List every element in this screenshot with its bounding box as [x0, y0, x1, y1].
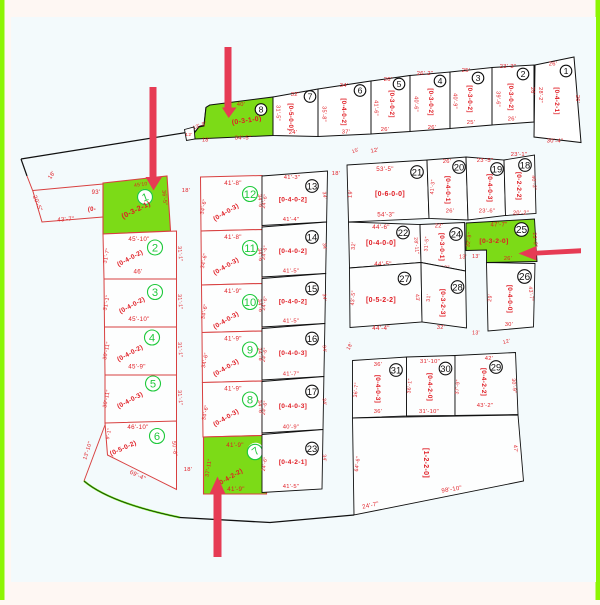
- svg-text:13': 13': [472, 331, 480, 337]
- svg-text:[0-4-0-1]: [0-4-0-1]: [444, 176, 451, 204]
- svg-text:26': 26': [384, 77, 392, 83]
- svg-text:43': 43': [414, 294, 421, 302]
- svg-text:26: 26: [519, 272, 531, 283]
- svg-text:[0-3-0-2]: [0-3-0-2]: [466, 85, 473, 113]
- svg-text:25': 25': [467, 120, 475, 126]
- svg-text:[0-4-0-2]: [0-4-0-2]: [340, 98, 347, 126]
- svg-text:2: 2: [521, 69, 526, 79]
- svg-text:21: 21: [412, 166, 422, 177]
- svg-text:41'-5": 41'-5": [283, 484, 300, 490]
- svg-text:54'-3": 54'-3": [377, 212, 395, 219]
- svg-text:[0-5-0-0]: [0-5-0-0]: [287, 103, 294, 131]
- svg-text:14: 14: [307, 231, 317, 242]
- svg-text:10: 10: [244, 297, 256, 309]
- svg-text:4: 4: [149, 333, 155, 345]
- svg-text:[0-3-0-2]: [0-3-0-2]: [427, 88, 434, 116]
- svg-text:41'-9": 41'-9": [227, 486, 245, 493]
- svg-text:18': 18': [332, 171, 340, 177]
- svg-text:[0-3-0-1]: [0-3-0-1]: [438, 233, 445, 261]
- svg-text:2: 2: [152, 243, 158, 255]
- svg-text:28: 28: [452, 281, 462, 292]
- svg-text:[0-3-2-0]: [0-3-2-0]: [479, 238, 508, 245]
- svg-text:31: 31: [391, 364, 401, 375]
- svg-text:18': 18': [202, 138, 210, 144]
- svg-text:18': 18': [182, 188, 190, 194]
- svg-text:13: 13: [307, 180, 317, 191]
- svg-text:19: 19: [492, 163, 502, 174]
- svg-text:[0-4-0-2]: [0-4-0-2]: [279, 248, 307, 255]
- svg-text:6: 6: [358, 86, 363, 96]
- svg-text:18': 18': [184, 467, 192, 473]
- svg-text:44'-6": 44'-6": [372, 224, 390, 231]
- svg-text:93': 93': [92, 190, 101, 196]
- svg-text:(0-: (0-: [88, 207, 96, 213]
- svg-text:43'-2": 43'-2": [477, 403, 494, 409]
- svg-text:41'-9": 41'-9": [224, 288, 242, 295]
- svg-text:47': 47': [512, 445, 519, 453]
- svg-text:41'-3": 41'-3": [284, 175, 301, 181]
- svg-text:39'-6": 39'-6": [495, 91, 501, 107]
- svg-text:30: 30: [440, 363, 450, 374]
- svg-text:26': 26': [574, 95, 580, 103]
- svg-text:8: 8: [259, 105, 264, 115]
- svg-text:47'-7": 47'-7": [490, 223, 507, 229]
- svg-text:23'-3": 23'-3": [500, 64, 517, 70]
- svg-text:40'-9": 40'-9": [452, 93, 458, 109]
- svg-text:[0-4-2-2]: [0-4-2-2]: [480, 368, 487, 396]
- svg-text:34': 34': [321, 398, 328, 406]
- svg-text:37': 37': [342, 130, 350, 136]
- svg-text:41'-8": 41'-8": [224, 180, 242, 187]
- svg-text:23'-1": 23'-1": [511, 152, 528, 158]
- svg-text:20'-2": 20'-2": [513, 211, 529, 217]
- svg-text:26': 26': [504, 256, 512, 262]
- svg-text:41'-7": 41'-7": [283, 372, 300, 378]
- svg-text:3: 3: [152, 287, 158, 299]
- svg-text:23'-6": 23'-6": [479, 209, 496, 215]
- svg-text:25': 25': [462, 68, 470, 74]
- svg-text:26': 26': [529, 87, 535, 95]
- svg-text:[0-4-0-3]: [0-4-0-3]: [279, 350, 307, 357]
- svg-text:[0-2-2-2]: [0-2-2-2]: [515, 172, 522, 200]
- svg-text:26'-2": 26'-2": [417, 71, 434, 77]
- svg-text:[0-4-2-1]: [0-4-2-1]: [553, 87, 560, 115]
- svg-text:34': 34': [321, 293, 328, 301]
- svg-text:29: 29: [491, 361, 501, 372]
- svg-text:31'-5": 31'-5": [275, 105, 281, 121]
- svg-text:[0-3-0-2]: [0-3-0-2]: [507, 83, 514, 111]
- svg-text:30': 30': [505, 322, 513, 328]
- svg-text:11: 11: [244, 243, 256, 255]
- svg-text:35'-8": 35'-8": [321, 106, 327, 122]
- svg-text:32': 32': [291, 92, 299, 98]
- svg-text:3: 3: [476, 73, 481, 83]
- svg-text:26': 26': [549, 62, 557, 68]
- svg-text:41'-9": 41'-9": [224, 386, 242, 393]
- svg-text:19': 19': [348, 190, 355, 198]
- svg-text:44'-4": 44'-4": [372, 325, 390, 332]
- svg-text:25: 25: [516, 225, 528, 236]
- svg-text:[0-4-0-0]: [0-4-0-0]: [366, 240, 396, 247]
- svg-text:46': 46': [134, 269, 143, 276]
- svg-text:4: 4: [438, 76, 443, 86]
- svg-text:26': 26': [446, 209, 454, 215]
- svg-text:[0-3-0-2]: [0-3-0-2]: [388, 90, 395, 118]
- svg-text:41'-4": 41'-4": [283, 217, 300, 223]
- svg-text:1: 1: [564, 66, 569, 76]
- svg-text:32': 32': [437, 325, 445, 331]
- svg-text:9: 9: [247, 345, 253, 357]
- svg-text:41'-5": 41'-5": [283, 319, 300, 325]
- svg-text:6: 6: [154, 431, 160, 443]
- svg-text:26': 26': [381, 127, 389, 133]
- svg-text:45'-10": 45'-10": [128, 316, 149, 323]
- svg-text:40'-9": 40'-9": [283, 425, 300, 431]
- svg-text:45'-10": 45'-10": [128, 236, 149, 243]
- svg-text:[0-3-2-3]: [0-3-2-3]: [439, 289, 446, 317]
- svg-text:[0-4-0-0]: [0-4-0-0]: [506, 285, 513, 313]
- svg-text:16: 16: [307, 333, 317, 344]
- svg-text:31': 31': [426, 294, 433, 302]
- svg-text:30'-4": 30'-4": [547, 139, 564, 145]
- svg-text:18: 18: [520, 159, 530, 170]
- svg-text:[0-4-2-0]: [0-4-2-0]: [426, 373, 433, 401]
- svg-text:34': 34': [321, 345, 328, 353]
- svg-text:32': 32': [351, 242, 358, 250]
- svg-text:[0-4-0-3]: [0-4-0-3]: [279, 403, 307, 410]
- svg-text:36': 36': [374, 362, 382, 368]
- svg-text:41'-9": 41'-9": [224, 336, 242, 343]
- svg-text:[0-5-2-2]: [0-5-2-2]: [366, 297, 396, 304]
- svg-text:26': 26': [443, 159, 451, 165]
- svg-text:22': 22': [435, 224, 443, 230]
- svg-text:40': 40': [237, 102, 245, 108]
- svg-text:34': 34': [321, 243, 328, 251]
- svg-text:[1-2-2-0]: [1-2-2-0]: [422, 448, 429, 478]
- svg-text:17: 17: [307, 386, 317, 397]
- svg-text:36': 36': [374, 409, 382, 415]
- svg-text:[0-4-0-2]: [0-4-0-2]: [279, 197, 307, 204]
- svg-text:12': 12': [185, 132, 192, 138]
- svg-text:43'-7": 43'-7": [57, 216, 74, 223]
- svg-text:41'-9": 41'-9": [226, 442, 244, 449]
- svg-text:7: 7: [308, 92, 313, 102]
- svg-text:34'-5": 34'-5": [235, 136, 252, 142]
- svg-text:53'-5": 53'-5": [376, 166, 394, 173]
- svg-text:5: 5: [150, 379, 156, 391]
- svg-text:29': 29': [487, 294, 494, 302]
- svg-text:8: 8: [247, 395, 253, 407]
- svg-text:[0-4-0-3]: [0-4-0-3]: [374, 375, 381, 403]
- svg-text:34': 34': [321, 191, 328, 199]
- svg-text:34': 34': [321, 454, 328, 462]
- svg-text:41'-8": 41'-8": [224, 234, 242, 241]
- svg-text:46'-10": 46'-10": [127, 424, 148, 431]
- svg-text:31'-10": 31'-10": [419, 409, 439, 415]
- svg-text:41'-6": 41'-6": [373, 100, 379, 116]
- svg-text:15: 15: [307, 283, 317, 294]
- svg-text:34': 34': [340, 83, 348, 89]
- svg-text:5: 5: [397, 79, 402, 89]
- svg-text:41'-5": 41'-5": [283, 269, 300, 275]
- svg-text:20: 20: [454, 161, 464, 172]
- svg-text:26': 26': [428, 125, 436, 131]
- svg-text:31'-10": 31'-10": [420, 359, 440, 365]
- svg-text:[0-4-2-1]: [0-4-2-1]: [279, 459, 307, 466]
- svg-text:13': 13': [459, 255, 467, 261]
- svg-text:45'-9": 45'-9": [128, 364, 146, 371]
- svg-text:13': 13': [472, 254, 480, 260]
- svg-text:[0-4-0-2]: [0-4-0-2]: [279, 299, 307, 306]
- svg-text:27: 27: [399, 273, 409, 284]
- svg-text:24': 24': [289, 130, 297, 136]
- svg-text:23: 23: [307, 443, 317, 454]
- svg-text:22: 22: [398, 227, 408, 238]
- svg-text:26': 26': [508, 117, 516, 123]
- svg-text:12: 12: [244, 189, 256, 201]
- svg-text:28'-2": 28'-2": [537, 87, 543, 103]
- svg-text:[0-4-0-3]: [0-4-0-3]: [486, 174, 493, 202]
- svg-text:[0-6-0-0]: [0-6-0-0]: [375, 191, 405, 198]
- svg-text:24: 24: [451, 228, 461, 239]
- svg-text:40'-6": 40'-6": [413, 96, 419, 112]
